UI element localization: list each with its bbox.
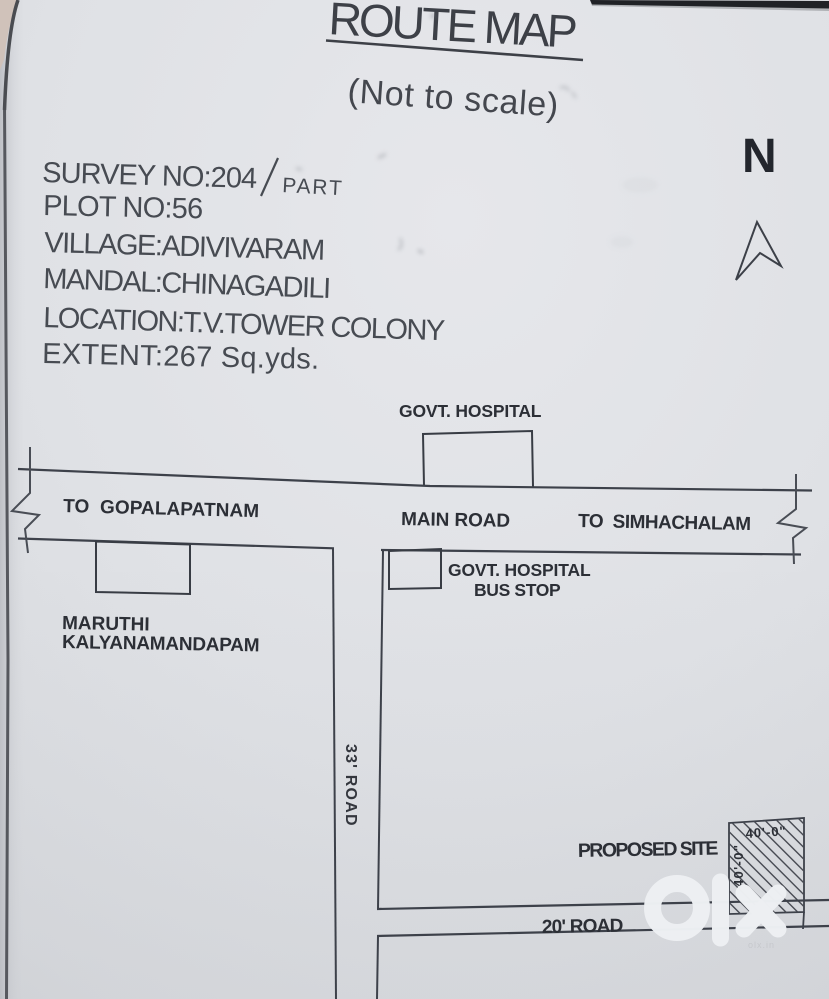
svg-text:PROPOSED SITE: PROPOSED SITE (578, 838, 719, 862)
svg-text:SURVEY NO:204: SURVEY NO:204 (42, 157, 259, 195)
svg-text:33' ROAD: 33' ROAD (342, 744, 359, 827)
svg-text:PART: PART (282, 174, 344, 200)
svg-text:EXTENT:267 Sq.yds.: EXTENT:267 Sq.yds. (42, 338, 321, 376)
svg-text:N: N (742, 130, 777, 183)
svg-text:KALYANAMANDAPAM: KALYANAMANDAPAM (62, 632, 260, 656)
svg-text:40'-0": 40'-0" (745, 823, 786, 841)
svg-text:40'-0": 40'-0" (731, 845, 746, 887)
svg-text:20' ROAD: 20' ROAD (542, 916, 624, 938)
svg-text:GOVT. HOSPITAL: GOVT. HOSPITAL (448, 560, 591, 580)
svg-text:olx.in: olx.in (748, 940, 775, 950)
svg-text:MAIN ROAD: MAIN ROAD (401, 509, 511, 532)
svg-text:GOVT. HOSPITAL: GOVT. HOSPITAL (399, 401, 542, 421)
svg-text:PLOT NO:56: PLOT NO:56 (43, 190, 205, 225)
svg-text:TO SIMHACHALAM: TO SIMHACHALAM (578, 511, 752, 535)
svg-text:BUS STOP: BUS STOP (474, 580, 561, 600)
